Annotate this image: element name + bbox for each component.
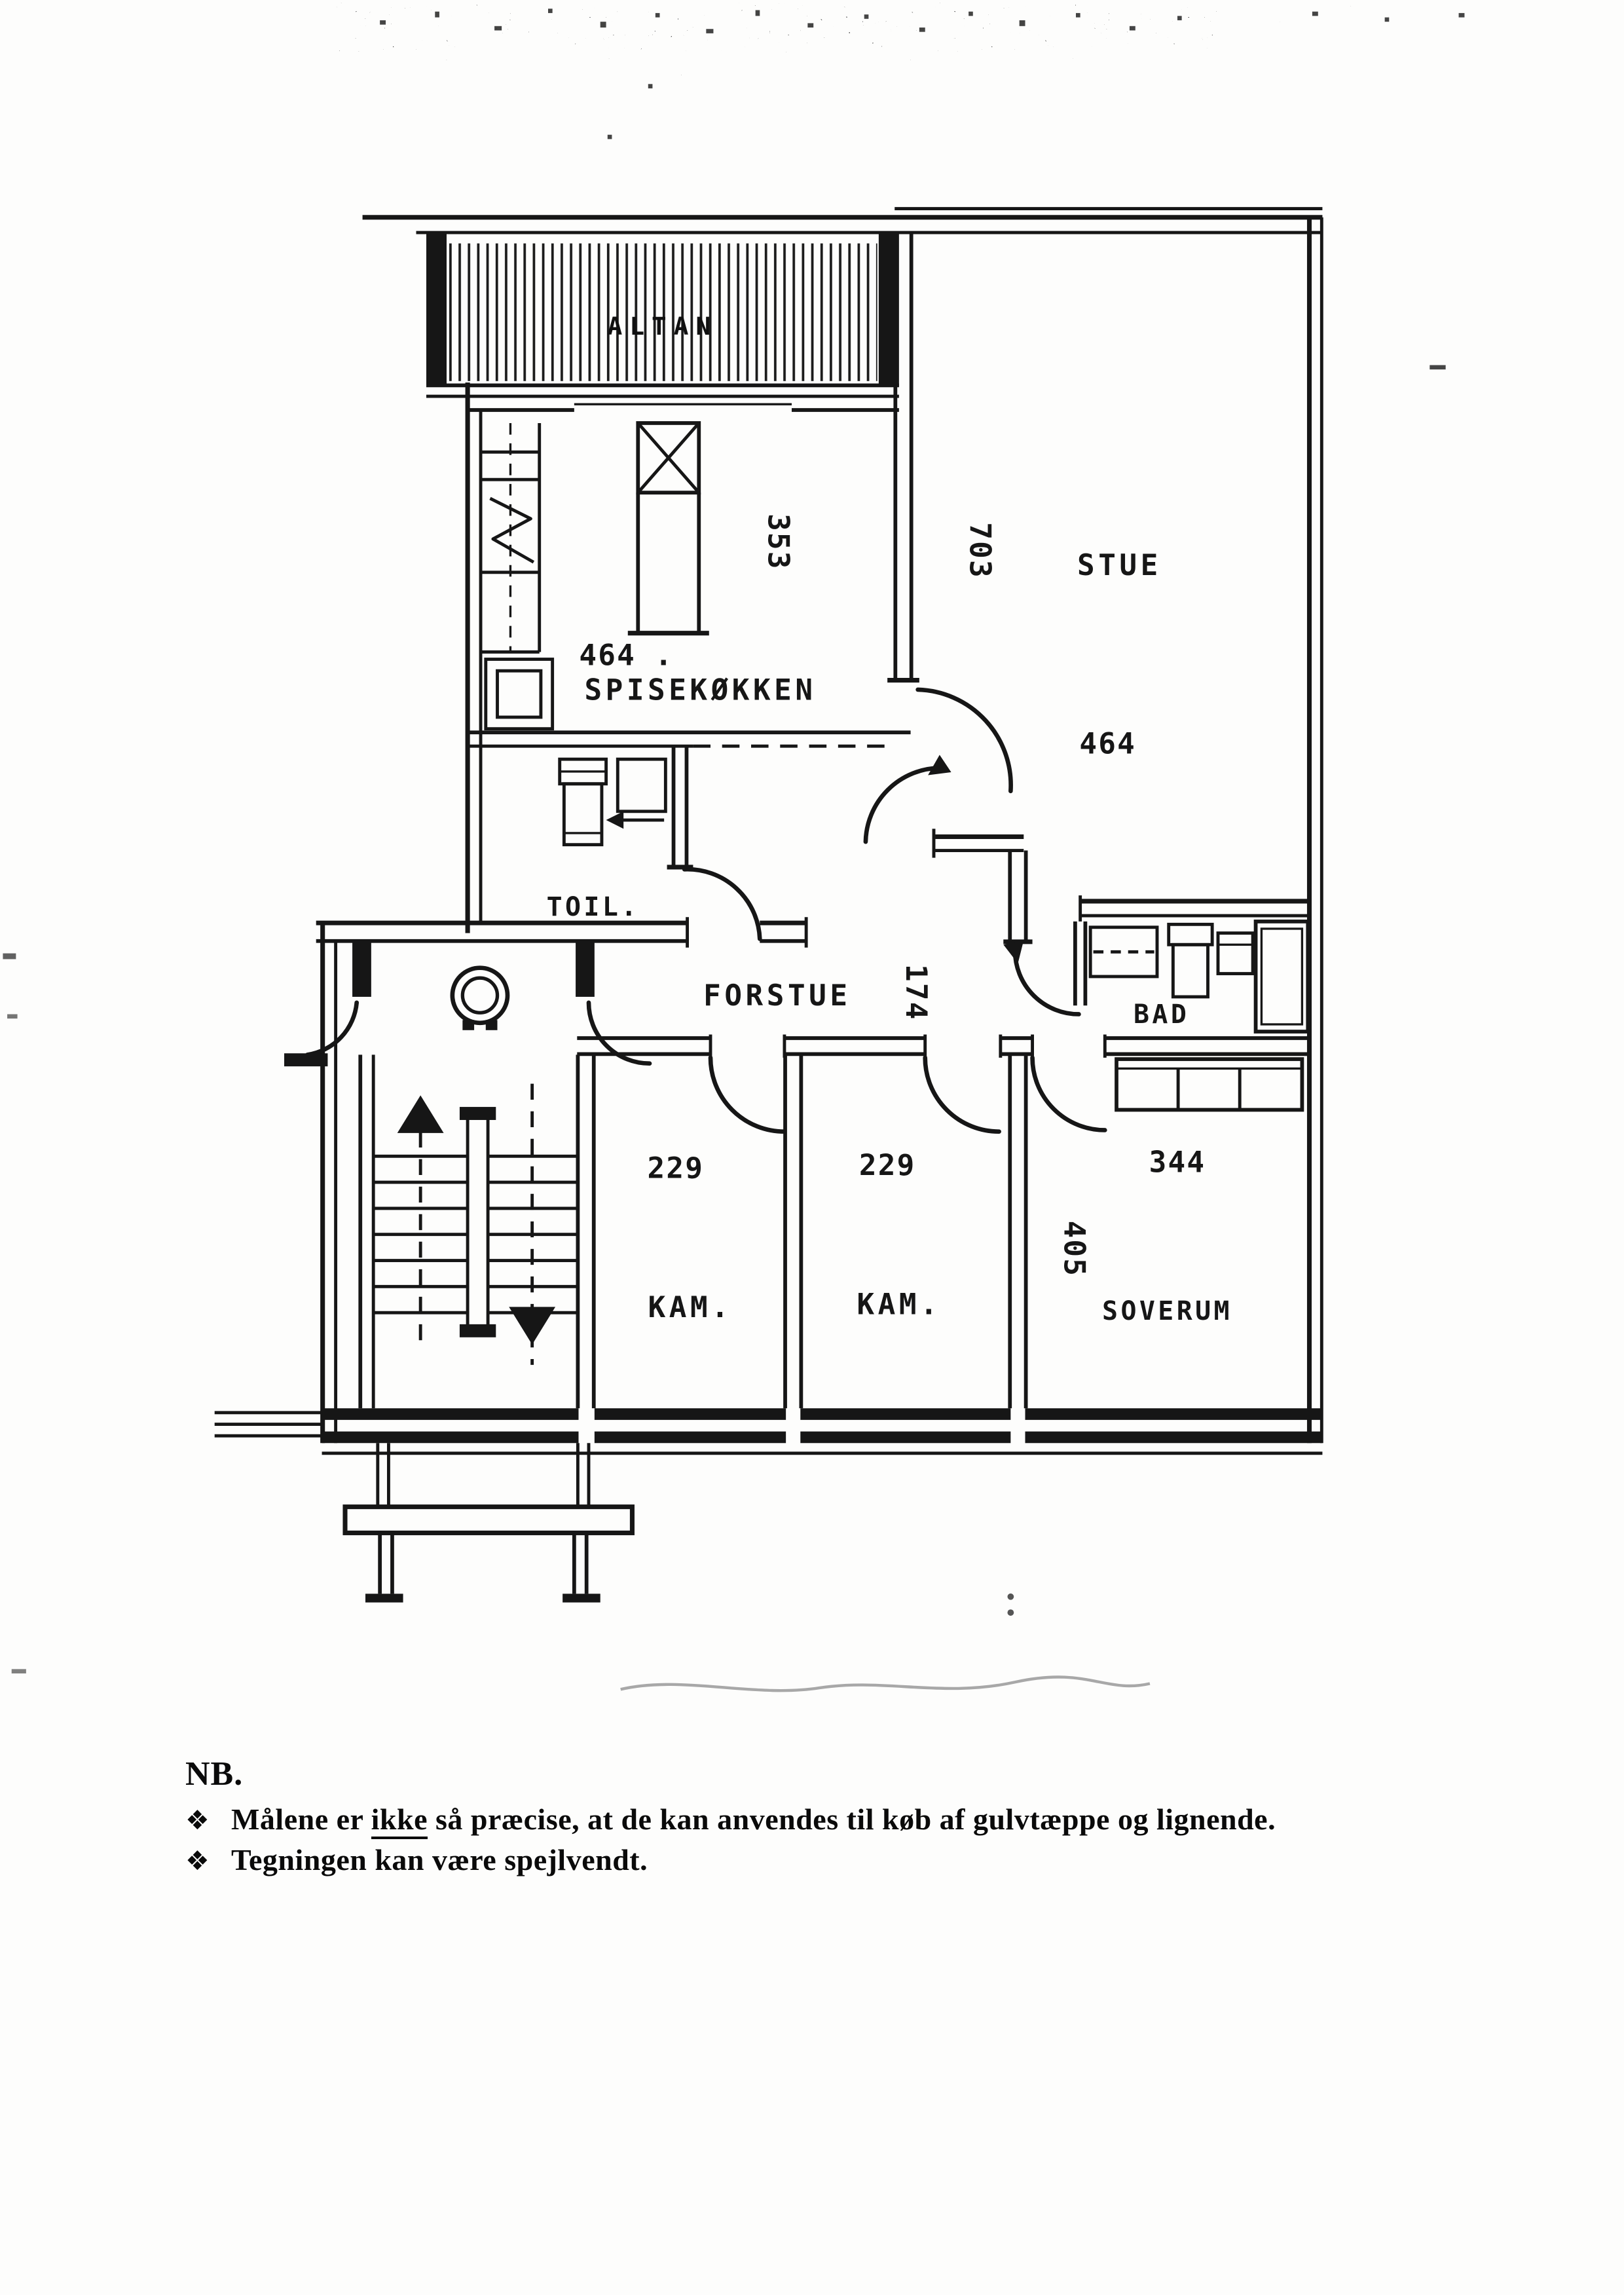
bullet-diamond-icon: ❖ <box>185 1804 231 1836</box>
door-swing-arc <box>866 768 940 842</box>
door-swing-arc <box>684 869 760 939</box>
kitchen-width-dim: 464 . <box>579 639 673 672</box>
note-item-1-text: Målene er ikke så præcise, at de kan anv… <box>231 1802 1276 1837</box>
hall: FORSTUE 174 <box>284 917 932 1066</box>
note-block: NB. ❖ Målene er ikke så præcise, at de k… <box>185 1757 1416 1877</box>
hall-width-dim: 174 <box>899 964 932 1021</box>
note-item-2: ❖ Tegningen kan være spejlvendt. <box>185 1842 1416 1877</box>
scanned-floorplan-page: ALTAN 353 464 . SPISEKØKKEN <box>0 0 1624 2295</box>
note-item-1-underlined: ikke <box>371 1802 428 1839</box>
note-item-1-post: så præcise, at de kan anvendes til køb a… <box>428 1802 1276 1836</box>
kitchen: 353 464 . SPISEKØKKEN <box>467 423 911 746</box>
balcony-label: ALTAN <box>608 312 718 341</box>
door-swing-arc <box>1015 950 1079 1014</box>
note-item-2-text: Tegningen kan være spejlvendt. <box>231 1842 648 1877</box>
balcony: ALTAN <box>426 232 899 410</box>
chamber2-label: KAM. <box>857 1288 941 1321</box>
stairs-down-arrow-icon <box>509 1307 555 1345</box>
kitchen-label: SPISEKØKKEN <box>584 673 816 707</box>
hall-label: FORSTUE <box>703 979 851 1013</box>
bedroom: 344 405 SOVERUM <box>1057 1059 1302 1326</box>
bottom-wall <box>215 1407 1323 1453</box>
bottom-row-walls <box>577 1034 1308 1408</box>
toilet-label: TOIL. <box>547 892 640 922</box>
toilet-icon <box>560 759 606 845</box>
floor-plan-drawing: ALTAN 353 464 . SPISEKØKKEN <box>0 0 1624 2295</box>
kitchen-table-icon <box>486 660 553 729</box>
bullet-diamond-icon: ❖ <box>185 1845 231 1876</box>
door-swing-arrow-icon <box>928 755 951 775</box>
bedroom-label: SOVERUM <box>1102 1296 1232 1326</box>
toilet-icon <box>1169 924 1212 997</box>
stairwell <box>360 1054 577 1408</box>
bathroom: BAD <box>1003 895 1308 1032</box>
exterior-walls <box>323 209 1323 1444</box>
kitchen-depth-dim: 353 <box>762 513 795 570</box>
door-swing-arc <box>1033 1058 1105 1130</box>
chamber-1: 229 KAM. <box>648 1151 733 1324</box>
door-swing-arc <box>710 1058 784 1132</box>
note-item-1: ❖ Målene er ikke så præcise, at de kan a… <box>185 1802 1416 1837</box>
living-depth-dim: 703 <box>963 522 996 579</box>
stairs-up-arrow-icon <box>397 1095 444 1133</box>
bedroom-width-dim: 344 <box>1149 1146 1206 1180</box>
chamber-2: 229 KAM. <box>857 1149 941 1321</box>
stair-treads <box>374 1156 577 1313</box>
door-swing-arc <box>918 690 1011 791</box>
washbasin-icon <box>1090 927 1157 977</box>
chamber2-width-dim: 229 <box>859 1149 916 1182</box>
entrance-canopy <box>345 1443 632 1602</box>
door-swing-arc <box>307 1003 356 1055</box>
bath-label: BAD <box>1134 999 1189 1030</box>
living-label: STUE <box>1077 549 1162 582</box>
kitchen-island-icon <box>628 423 709 633</box>
bedroom-depth-dim: 405 <box>1057 1221 1090 1278</box>
bathtub-icon <box>1256 922 1308 1032</box>
door-swing-arc <box>925 1058 999 1132</box>
living-width-dim: 464 <box>1079 727 1136 760</box>
kitchen-counter-icon <box>481 423 540 652</box>
chamber1-width-dim: 229 <box>648 1151 705 1185</box>
note-item-1-pre: Målene er <box>231 1802 371 1836</box>
sink-icon <box>1218 933 1253 974</box>
toilet-room: TOIL. <box>547 746 760 939</box>
chamber1-label: KAM. <box>648 1291 733 1324</box>
sink-icon <box>606 759 666 829</box>
wardrobe-icon <box>1116 1059 1302 1110</box>
living-room: 703 STUE 464 <box>866 232 1162 942</box>
round-fixture-icon <box>452 968 507 1030</box>
note-heading: NB. <box>185 1757 1416 1793</box>
